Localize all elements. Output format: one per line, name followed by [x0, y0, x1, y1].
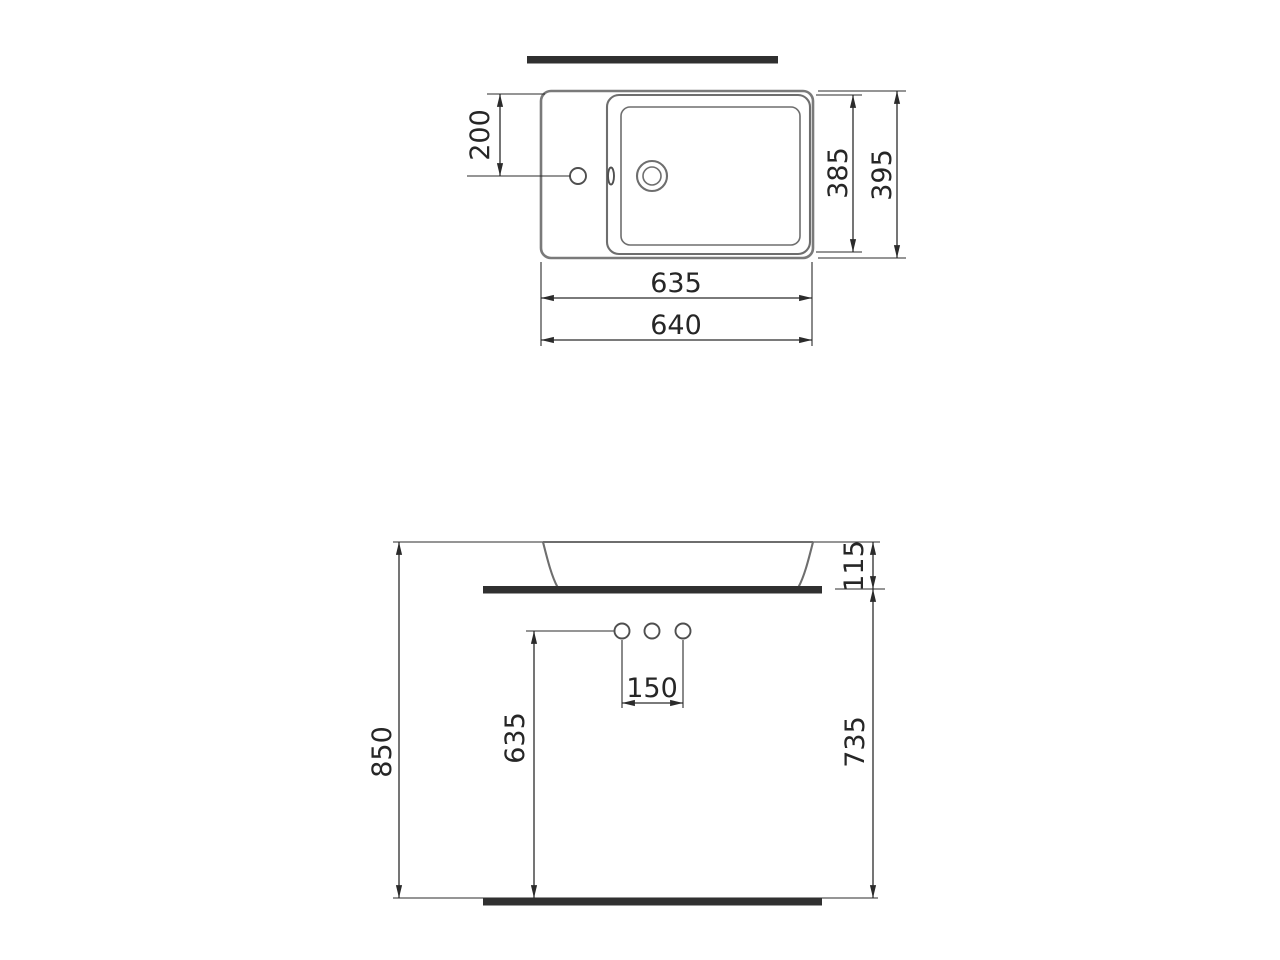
top-view: 200 385 395 635 640 — [465, 56, 906, 346]
washbasin-drawing: 200 385 395 635 640 — [0, 0, 1280, 960]
dim-outer-width: 640 — [541, 310, 812, 341]
dim-hole-offset: 200 — [465, 94, 570, 176]
dim-rim-height: 115 — [835, 540, 885, 592]
wall-bar — [527, 56, 778, 64]
dim-outer-width-label: 640 — [650, 310, 702, 341]
dim-hole-offset-label: 200 — [465, 109, 496, 161]
sink-profile-right-side — [799, 542, 814, 587]
dim-holes-height: 635 — [500, 631, 534, 898]
dim-inner-depth: 385 — [816, 95, 862, 252]
basin-bottom-outline — [621, 107, 800, 245]
technical-drawing-canvas: 200 385 395 635 640 — [0, 0, 1280, 960]
drain-inner-circle — [643, 167, 661, 185]
dim-counter-height: 735 — [840, 589, 873, 898]
overflow-slot — [608, 168, 614, 185]
faucet-hole — [570, 168, 586, 184]
dim-overall-height-label: 850 — [367, 726, 398, 778]
dim-outer-depth-label: 395 — [867, 149, 898, 201]
drain-outer-circle — [637, 161, 667, 191]
mounting-hole-right — [676, 624, 691, 639]
dim-hole-spacing-label: 150 — [626, 673, 678, 704]
mounting-hole-left — [615, 624, 630, 639]
dim-overall-height: 850 — [367, 542, 399, 898]
dim-holes-height-label: 635 — [500, 712, 531, 764]
dim-rim-height-label: 115 — [839, 540, 870, 592]
front-view: 150 850 635 115 735 — [367, 540, 885, 905]
dim-hole-spacing: 150 — [622, 640, 683, 708]
dim-inner-width: 635 — [541, 268, 812, 299]
dim-inner-depth-label: 385 — [823, 147, 854, 199]
sink-profile-left-side — [543, 542, 558, 587]
dim-counter-height-label: 735 — [840, 716, 871, 768]
dim-inner-width-label: 635 — [650, 268, 702, 299]
mounting-hole-center — [645, 624, 660, 639]
countertop-bar — [483, 586, 822, 594]
floor-bar — [483, 898, 822, 906]
sink-profile — [543, 542, 813, 587]
